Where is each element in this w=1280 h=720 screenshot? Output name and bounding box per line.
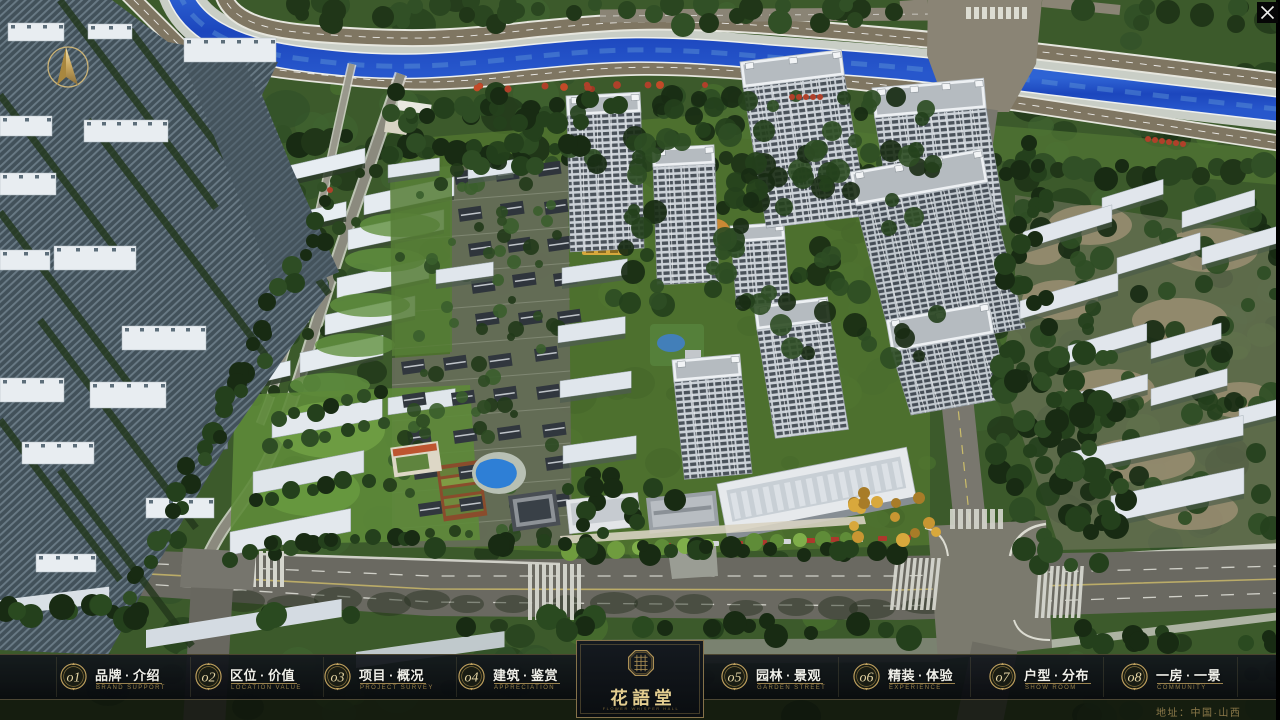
svg-text:o5: o5: [728, 670, 742, 685]
svg-text:o4: o4: [465, 670, 479, 685]
svg-text:o1: o1: [67, 670, 81, 685]
svg-text:o2: o2: [202, 670, 216, 685]
svg-text:o7: o7: [996, 670, 1011, 685]
svg-text:o8: o8: [1128, 670, 1142, 685]
svg-text:o6: o6: [860, 670, 874, 685]
svg-text:o3: o3: [331, 670, 345, 685]
